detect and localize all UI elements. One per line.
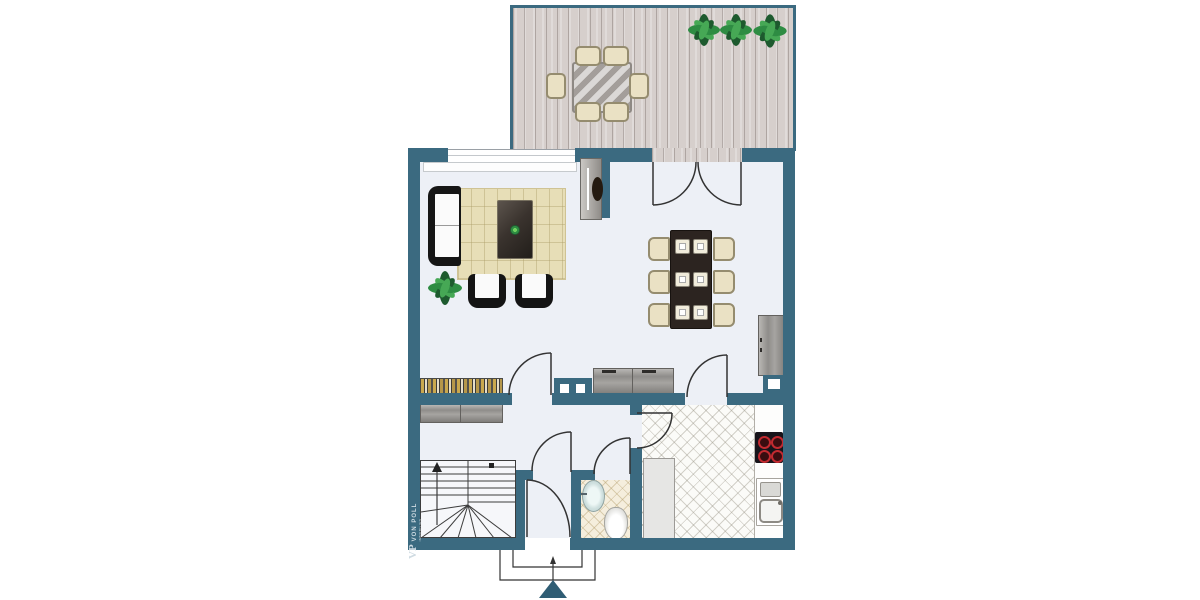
chimney-block <box>554 378 592 405</box>
table-plant-icon <box>510 225 520 235</box>
living-room-window <box>448 149 575 163</box>
armchair <box>468 274 506 308</box>
logo-monogram: VP <box>407 544 419 559</box>
armchair <box>515 274 553 308</box>
sofa <box>428 186 461 266</box>
plant-icon <box>718 8 754 54</box>
dining-chair <box>713 303 735 327</box>
wall-kitchen-stub <box>630 405 642 415</box>
wall-vestibule-left <box>515 470 525 538</box>
wall-mid-c <box>727 393 783 405</box>
wall-kitchen-v <box>630 448 642 538</box>
dining-chair <box>648 237 670 261</box>
washbasin <box>582 480 605 512</box>
terrace-deck <box>510 5 796 151</box>
brand-logo: VP VON POLL IMMOBILIEN <box>407 479 419 559</box>
dining-chair <box>648 303 670 327</box>
terrace-chair <box>575 46 601 66</box>
plant-icon <box>686 8 722 54</box>
terrace-chair <box>546 73 566 99</box>
tv-screen-icon <box>592 177 603 201</box>
terrace-chair <box>603 102 629 122</box>
plant-icon <box>751 8 789 56</box>
dining-chair <box>713 270 735 294</box>
wall-bottom-left <box>408 538 525 550</box>
floor-plan-canvas: against <box>0 0 1200 600</box>
toilet <box>604 507 628 540</box>
wall-mid-a <box>420 393 512 405</box>
dining-chair <box>648 270 670 294</box>
terrace-chair <box>629 73 649 99</box>
window-recess <box>423 162 577 172</box>
wall-vestibule-right <box>571 470 581 538</box>
logo-subtitle: IMMOBILIEN <box>418 503 422 542</box>
dining-chair <box>713 237 735 261</box>
faucet-icon <box>581 493 587 495</box>
coffee-table <box>497 200 533 259</box>
terrace-chair <box>575 102 601 122</box>
entrance-arrow-icon <box>539 580 567 598</box>
terrace-chair <box>603 46 629 66</box>
dining-table <box>670 230 712 329</box>
wall-right <box>783 148 795 550</box>
wall-shaft-right <box>763 375 787 393</box>
faucet-icon <box>778 501 782 505</box>
terrace-door-threshold <box>652 148 742 162</box>
dining-sideboard <box>758 315 786 376</box>
tv-panel <box>580 158 602 220</box>
entrance-marker <box>500 550 595 598</box>
hall-sideboard <box>420 404 503 423</box>
living-lowboard <box>593 368 674 395</box>
kitchen-tall-cabinet <box>643 458 675 540</box>
kitchen-sink-unit <box>756 478 785 526</box>
floor-plant-icon: against <box>426 265 464 311</box>
wall-bottom-right <box>570 538 795 550</box>
cooktop <box>755 432 783 463</box>
